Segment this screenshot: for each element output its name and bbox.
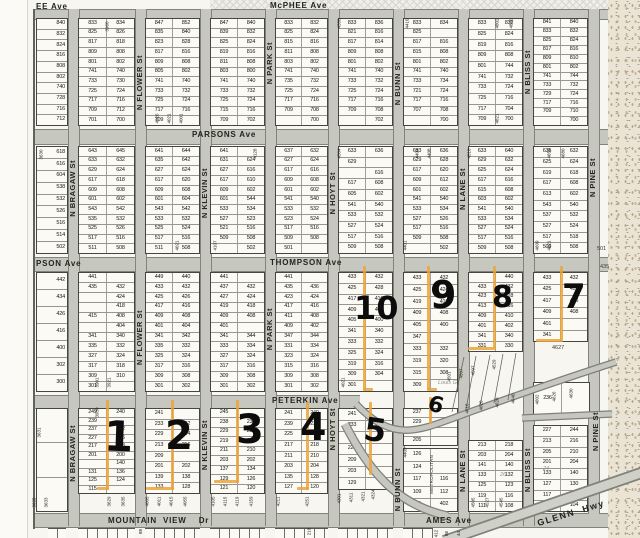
lot-number: 402 [302, 323, 327, 332]
lot-number: 543 [534, 201, 561, 211]
lot-number [339, 116, 366, 125]
lot-number: 433 [534, 273, 561, 284]
lot-number: 617 [146, 176, 173, 185]
lot-number: 808 [37, 62, 67, 72]
lot-number: 824 [561, 37, 587, 45]
lot-row: 533534 [404, 204, 457, 214]
lot-number: 733 [339, 77, 366, 86]
lot-number: 316 [238, 362, 264, 371]
lot-number: 302 [37, 358, 67, 374]
lot-row: 501 [276, 243, 327, 253]
rotated-lot-number: 4507 [471, 365, 476, 375]
lot-number: 816 [302, 38, 327, 47]
lot-number: 125 [79, 477, 107, 485]
lot-number: 704 [496, 105, 522, 115]
lot-number: 239 [276, 420, 302, 430]
lot-number: 308 [238, 372, 264, 381]
lot-number: 334 [238, 342, 264, 351]
lot-number: 424 [107, 293, 134, 302]
lot-number: 318 [107, 362, 134, 371]
rotated-lot-number: 3630 [39, 149, 44, 159]
lot-row: 741740 [276, 67, 327, 77]
lot-number: 725 [146, 97, 173, 106]
city-block: 8478408398328258248198168118088038007417… [210, 18, 265, 126]
lot-number: 839 [211, 29, 238, 38]
rotated-lot-number: 4404 [415, 148, 420, 158]
street-label-metropolitan: METROPOLITAN [429, 455, 434, 494]
lot-number: 302 [173, 382, 199, 391]
lot-number: 409 [534, 308, 561, 319]
lot-number: 426 [173, 293, 199, 302]
lot-row: 700 [534, 116, 587, 125]
lot-number: 502 [238, 244, 264, 253]
lot-number [79, 293, 107, 302]
street-label-vertical: N PINE St [588, 158, 597, 197]
lot-row: 317316 [211, 361, 264, 371]
lot-number: 642 [173, 157, 199, 166]
lot-number: 801 [469, 62, 496, 72]
lot-row: 411408 [276, 312, 327, 322]
lot-row: 809808 [469, 50, 522, 61]
lot-number: 435 [276, 283, 302, 292]
lot-number: 740 [107, 68, 134, 77]
lot-row: 533534 [469, 214, 522, 224]
lot-number: 716 [561, 99, 587, 107]
lot-number: 327 [211, 352, 238, 361]
lot-number: 620 [173, 176, 199, 185]
lot-row: 609612 [404, 175, 457, 185]
lot-number: 436 [302, 283, 327, 292]
lot-row: 817816 [404, 37, 457, 47]
lot-row: 617620 [404, 165, 457, 175]
lot-number [404, 244, 431, 253]
lot-row: 619618 [534, 167, 587, 178]
rotated-lot-number: 4510 [467, 148, 472, 158]
lot-row: 809808 [79, 47, 134, 57]
lot-number: 341 [211, 333, 238, 342]
lot-number: 229 [404, 418, 431, 426]
street-label-vertical: N BUNN St [393, 468, 402, 511]
lot-number: 324 [238, 352, 264, 361]
lot-row: 213218 [469, 441, 522, 450]
lot-row: 347344 [276, 332, 327, 342]
lot-row: 717716 [79, 96, 134, 106]
lot-row: 633640 [469, 147, 522, 156]
lot-row: 315316 [276, 361, 327, 371]
lot-number: 204 [561, 458, 587, 468]
lot-number: 213 [534, 437, 561, 447]
lot-row: 511508 [146, 243, 199, 253]
lot-number: 826 [107, 29, 134, 38]
lot-number: 341 [469, 332, 496, 341]
rotated-lot-number: 4159 [249, 496, 254, 506]
lot-number: 516 [302, 225, 327, 234]
lot-row: 625624 [469, 165, 522, 175]
lot-number: 205 [404, 437, 431, 445]
lot-number [561, 331, 587, 342]
lot-number: 732 [173, 87, 199, 96]
lot-number: 825 [211, 38, 238, 47]
lot-number: 209 [339, 455, 366, 466]
lot-number: 733 [534, 81, 561, 89]
lot-row: 835840 [146, 28, 199, 38]
lot-number: 309 [146, 372, 173, 381]
lot-row: 733732 [534, 80, 587, 89]
rotated-lot-number: 4626 [552, 391, 557, 401]
lot-row: 616 [37, 158, 67, 170]
lot-row: 517516 [146, 234, 199, 244]
lot-number: 627 [146, 166, 173, 175]
lot-number: 509 [339, 243, 366, 253]
rotated-lot-number: 4001 [179, 113, 184, 123]
lot-row: 733734 [404, 76, 457, 86]
lot-number: 325 [339, 349, 366, 359]
rotated-lot-number: 44 [456, 531, 461, 536]
lot-number: 709 [79, 107, 107, 116]
lot-number: 335 [146, 342, 173, 351]
lot-number: 824 [496, 30, 522, 40]
lot-number: 732 [302, 77, 327, 86]
rotated-lot-number: 4380 [337, 18, 342, 28]
lot-number: 732 [496, 73, 522, 83]
lot-number: 833 [534, 28, 561, 36]
lot-number: 408 [238, 313, 264, 322]
bottom-lot-strip [275, 528, 328, 538]
lot-number: 109 [404, 487, 431, 499]
lot-row: 643645 [79, 147, 134, 156]
lot-number: 708 [431, 107, 457, 116]
lot-number: 741 [146, 77, 173, 86]
street-label-vertical: N LANE St [458, 450, 467, 492]
handwritten-number-10: 10 [354, 294, 399, 323]
city-block: 6336406296326256246176166156086036025415… [468, 146, 523, 254]
lot-number: 302 [238, 382, 264, 391]
rotated-lot-number: 3930 [95, 407, 100, 417]
lot-number: 324 [173, 352, 199, 361]
lot-number: 624 [107, 166, 134, 175]
rotated-lot-number: 4640 [511, 393, 516, 403]
lot-number: 533 [146, 215, 173, 224]
lot-number: 523 [238, 215, 264, 224]
lot-number: 516 [37, 218, 67, 229]
street-label: THOMPSON Ave [270, 258, 342, 267]
lot-row: 543540 [534, 200, 587, 211]
lot-number: 541 [469, 205, 496, 214]
lot-number: 534 [496, 215, 522, 224]
lot-row: 227244 [534, 426, 587, 436]
lot-number: 101 [404, 499, 431, 511]
lot-number: 218 [496, 441, 522, 450]
bottom-lot-strip [210, 528, 265, 538]
lot-number: 508 [431, 235, 457, 244]
lot-number: 602 [238, 186, 264, 195]
lot-row: 418 [79, 302, 134, 312]
highlight-mark-block-7 [536, 339, 563, 342]
lot-number: 532 [107, 215, 134, 224]
lot-number [562, 383, 589, 414]
lot-number: 832 [302, 19, 327, 28]
lot-number: 225 [404, 428, 431, 436]
lot-number [276, 116, 302, 125]
lot-number: 847 [146, 19, 173, 28]
street-label-vertical: N PARK St [265, 42, 274, 84]
lot-number: 620 [431, 166, 457, 175]
highlight-mark-block-1 [97, 487, 109, 490]
lot-number: 202 [173, 462, 199, 472]
lot-row: 537532 [534, 210, 587, 221]
lot-row: 801802 [534, 63, 587, 72]
lot-row: 729724 [534, 89, 587, 98]
lot-number: 615 [469, 186, 496, 195]
lot-number: 602 [366, 190, 392, 200]
lot-number: 609 [276, 176, 302, 185]
annotation: Louis G [438, 380, 457, 386]
lot-row: 301302 [276, 381, 327, 391]
lot-row: 523524 [276, 214, 327, 224]
lot-number: 237 [79, 426, 107, 434]
lot-row: 201204 [534, 457, 587, 468]
lot-row: 525526 [79, 224, 134, 234]
street-label-vertical: N KLEVIN St [200, 420, 209, 470]
lot-row: 741740 [79, 67, 134, 77]
lot-number: 700 [561, 117, 587, 125]
lot-row: 301302 [146, 381, 199, 391]
lot-number: 609 [146, 186, 173, 195]
annotation: 435 [600, 264, 609, 270]
lot-number: 740 [37, 83, 67, 93]
lot-row: 811808 [211, 57, 264, 67]
lot-number: 347 [276, 333, 302, 342]
lot-row: 617616 [469, 175, 522, 185]
lot-number: 617 [339, 179, 366, 189]
lot-row: 741740 [404, 67, 457, 77]
street-label-vertical: N HOYT St [328, 172, 337, 214]
lot-row: 709710 [534, 107, 587, 116]
rotated-lot-number: 210 [306, 528, 311, 536]
lot-number: 317 [79, 362, 107, 371]
lot-number: 331 [276, 342, 302, 351]
lot-row: 533532 [146, 214, 199, 224]
lot-number: 627 [211, 166, 238, 175]
lot-row: 709712 [79, 106, 134, 116]
lot-number: 613 [534, 190, 561, 200]
lot-number: 203 [276, 462, 302, 472]
lot-row: 517516 [469, 234, 522, 244]
lot-number: 700 [431, 116, 457, 125]
lot-number: 833 [469, 19, 496, 29]
lot-number: 432 [366, 273, 392, 283]
lot-number: 116 [561, 491, 587, 501]
lot-row: 811808 [276, 47, 327, 57]
lot-row: 725724 [211, 96, 264, 106]
lot-number: 211 [276, 452, 302, 462]
rotated-lot-number: 4527 [485, 497, 490, 507]
lot-number: 700 [107, 116, 134, 125]
lot-row: 805802 [146, 67, 199, 77]
lot-row: 133132 [469, 470, 522, 480]
lot-number: 316 [366, 360, 392, 370]
lot-number: 800 [238, 68, 264, 77]
lot-number: 716 [173, 107, 199, 116]
lot-number: 833 [79, 19, 107, 28]
lot-row [37, 477, 67, 511]
lot-number: 618 [107, 176, 134, 185]
lot-number: 309 [79, 372, 107, 381]
lot-row: 605602 [339, 189, 392, 200]
lot-number: 517 [146, 235, 173, 244]
lot-number: 721 [404, 87, 431, 96]
lot-row: 821816 [339, 28, 392, 38]
lot-number: 139 [146, 473, 173, 483]
city-block: 6356326256246196186176086136025435405375… [533, 146, 588, 254]
lot-number: 409 [146, 313, 173, 322]
lot-number: 317 [211, 362, 238, 371]
city-block: 236 [533, 382, 590, 415]
lot-number: 833 [276, 19, 302, 28]
lot-number: 541 [276, 196, 302, 205]
lot-number: 700 [496, 115, 522, 125]
rotated-lot-number: 3631 [37, 427, 42, 437]
rotated-lot-number: 4408 [427, 148, 432, 158]
lot-number: 732 [366, 77, 392, 86]
lot-number: 825 [469, 30, 496, 40]
lot-row: 133140 [534, 468, 587, 479]
lot-number: 802 [431, 58, 457, 67]
lot-number: 819 [469, 40, 496, 50]
lot-row: 802 [37, 72, 67, 83]
lot-number: 341 [339, 327, 366, 337]
rotated-lot-number: 4311 [348, 493, 353, 503]
lot-row: 517516 [276, 224, 327, 234]
lot-number: 612 [431, 176, 457, 185]
lot-number [238, 147, 264, 156]
lot-number: 803 [211, 68, 238, 77]
rotated-lot-number: 4529 [492, 359, 497, 369]
lot-row: 441 [211, 273, 264, 282]
rotated-lot-number: 3921 [107, 377, 112, 387]
highlight-mark-block-8 [468, 347, 496, 350]
lot-number: 724 [496, 83, 522, 93]
lot-row: 717716 [339, 96, 392, 106]
lot-number: 533 [211, 205, 238, 214]
lot-row: 709708 [276, 106, 327, 116]
lot-row: 511508 [79, 243, 134, 253]
lot-number: 404 [173, 323, 199, 332]
lot-row: 847840 [211, 19, 264, 28]
lot-number: 809 [534, 55, 561, 63]
lot-number: 817 [339, 38, 366, 47]
lot-number: 335 [79, 342, 107, 351]
lot-number: 116 [431, 474, 457, 486]
lot-number: 227 [534, 426, 561, 436]
lot-number: 708 [366, 107, 392, 116]
lot-row: 517518 [534, 232, 587, 243]
lot-row: 609608 [146, 185, 199, 195]
lot-number: 609 [211, 186, 238, 195]
lot-row: 301302 [211, 381, 264, 391]
lot-row: 801802 [79, 57, 134, 67]
lot-number: 441 [211, 273, 238, 282]
lot-number [173, 116, 199, 125]
lot-number: 204 [496, 451, 522, 460]
highlight-mark-block-4 [297, 487, 309, 490]
lot-row: 401 [211, 322, 264, 332]
lot-number: 824 [238, 38, 264, 47]
lot-number: 801 [534, 64, 561, 72]
street-label-vertical: N BRAGAW St [68, 160, 77, 217]
lot-number: 423 [276, 293, 302, 302]
lot-row: 815808 [404, 47, 457, 57]
lot-number: 340 [366, 327, 392, 337]
rotated-lot-number: 4621 [547, 240, 552, 250]
lot-number: 841 [534, 19, 561, 27]
lot-number: 409 [211, 313, 238, 322]
city-block: 6336366296286176206096126016025415405335… [403, 146, 458, 254]
lot-row: 733730 [79, 76, 134, 86]
lot-row: 409408 [211, 312, 264, 322]
lot-number: 533 [339, 211, 366, 221]
lot-number: 717 [79, 97, 107, 106]
lot-number: 817 [404, 38, 431, 47]
rotated-lot-number: 3625 [32, 497, 37, 507]
lot-number [366, 158, 392, 168]
lot-number: 535 [79, 215, 107, 224]
lot-number: 808 [173, 58, 199, 67]
lot-row: 526 [37, 205, 67, 217]
lot-number: 427 [211, 293, 238, 302]
lot-row: 741732 [469, 72, 522, 83]
lot-number: 734 [431, 77, 457, 86]
lot-number: 518 [561, 233, 587, 243]
rotated-lot-number: 4021 [167, 113, 172, 123]
street-label-vertical: N BRAGAW St [68, 425, 77, 482]
lot-number: 323 [276, 352, 302, 361]
lot-number: 543 [79, 205, 107, 214]
lot-number: 815 [276, 38, 302, 47]
bottom-lot-strip [403, 528, 433, 538]
lot-number: 140 [496, 461, 522, 470]
rotated-lot-number: 3633 [44, 497, 49, 507]
lot-row: 341342 [146, 332, 199, 342]
lot-row: 627624 [276, 156, 327, 166]
lot-row: 847852 [146, 19, 199, 28]
lot-number: 300 [37, 375, 67, 391]
annotation: 26 [500, 472, 506, 478]
lot-number: 617 [276, 166, 302, 175]
lot-number: 847 [211, 19, 238, 28]
lot-number: 516 [107, 235, 134, 244]
lot-number: 526 [37, 206, 67, 217]
lot-number: 717 [339, 97, 366, 106]
lot-number: 301 [211, 382, 238, 391]
lot-number: 716 [107, 97, 134, 106]
lot-number: 433 [339, 273, 366, 283]
lot-row: 416 [37, 323, 67, 340]
lot-number: 603 [469, 196, 496, 205]
rotated-lot-number: 3901 [95, 377, 100, 387]
lot-row: 426 [37, 306, 67, 323]
lot-number: 532 [561, 211, 587, 221]
lot-row: 302 [37, 357, 67, 374]
lot-row: 817814 [339, 37, 392, 47]
lot-row: 341340 [79, 332, 134, 342]
lot-number: 816 [496, 40, 522, 50]
lot-number: 724 [302, 87, 327, 96]
lot-number: 125 [469, 482, 496, 491]
lot-number: 502 [37, 242, 67, 253]
lot-row: 433432 [146, 282, 199, 292]
lot-number: 508 [366, 243, 392, 253]
